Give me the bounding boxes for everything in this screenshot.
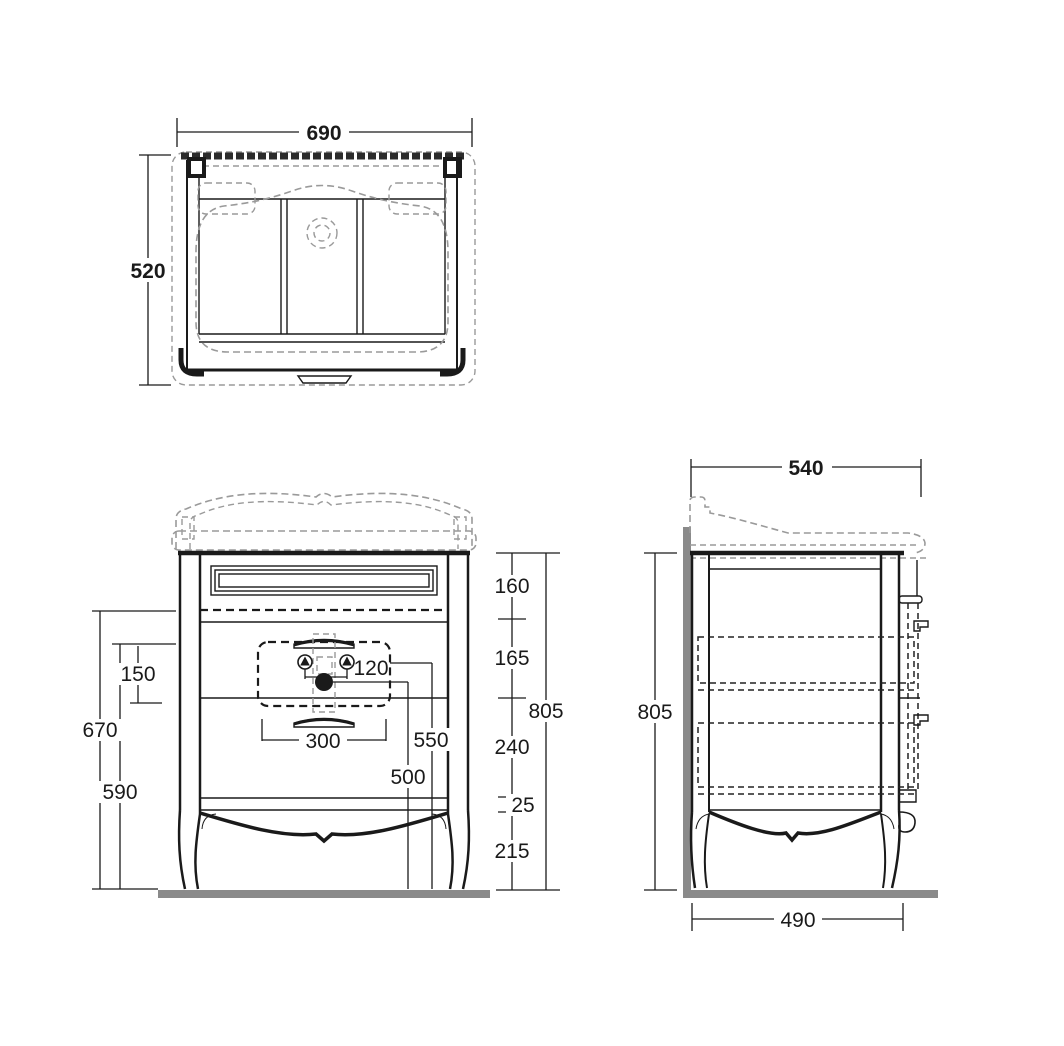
faucet-icon: [307, 218, 337, 248]
apron-curve-side: [709, 812, 881, 840]
backsplash-outline: [176, 493, 472, 549]
top-drawer-face-3: [219, 574, 429, 587]
top-drawer-face-2: [215, 570, 433, 591]
vanity-technical-drawing: 690 520: [0, 0, 1064, 1046]
label-faucet-spacing: 120: [353, 657, 388, 680]
leg-right-outer: [463, 810, 469, 889]
label-left-total: 670: [82, 719, 117, 742]
label-handle-width: 300: [305, 730, 340, 753]
label-seg-lower: 240: [494, 736, 529, 759]
label-seg-legs: 215: [494, 840, 529, 863]
dim-lines: [92, 611, 176, 889]
dim-plan-width: 690: [177, 118, 472, 147]
label-plan-width: 690: [306, 122, 341, 145]
label-total-height: 805: [528, 700, 563, 723]
label-side-width: 540: [788, 457, 823, 480]
front-leg-outer: [892, 810, 900, 888]
inner-side-edges: [199, 178, 445, 334]
backsplash-outer: [176, 493, 472, 549]
handle-top-profile: [899, 596, 922, 603]
carcass-frame: [187, 160, 457, 370]
supply-triangle: [342, 657, 352, 666]
side-view: 540: [632, 456, 938, 932]
label-drain-height: 500: [390, 766, 425, 789]
leg-left-inner: [195, 814, 200, 889]
label-left-lower: 590: [102, 781, 137, 804]
floor-front: [158, 890, 490, 898]
handle-bottom-arc: [294, 720, 354, 725]
front-leg-scroll: [899, 812, 915, 832]
faucet-inner: [314, 225, 330, 241]
frame-rails: [199, 199, 445, 342]
dim-drain-height: 500: [333, 682, 431, 889]
frame-dividers: [281, 199, 363, 334]
dim-chain-right: 160 165 240 25 215 805: [489, 553, 569, 890]
supply-fitting-left: [298, 655, 312, 669]
handle-mid-profile: [914, 621, 928, 631]
dim-side-depth: 490: [692, 903, 903, 932]
cabinet-front: [178, 553, 470, 889]
drain-icon: [315, 673, 333, 691]
wall: [683, 527, 691, 898]
cabinet-side: [690, 553, 928, 888]
plan-handle: [298, 376, 351, 383]
countertop-side: [690, 497, 926, 558]
front-view: 120 550 500 300 160 165 240 25: [77, 493, 569, 898]
apron-shoulder-arcs: [202, 814, 446, 829]
splash-return-left: [182, 517, 194, 539]
label-side-height: 805: [637, 701, 672, 724]
sink-outline: [196, 186, 448, 353]
faucet-outer: [307, 218, 337, 248]
apron-curve: [200, 813, 448, 841]
back-leg-outer: [691, 812, 695, 888]
label-left-zone: 150: [120, 663, 155, 686]
floor-side: [683, 890, 938, 898]
dim-plan-depth: 520: [124, 155, 172, 385]
dim-left: 670 150 590: [77, 611, 176, 889]
technical-drawing-page: 690 520: [0, 0, 1064, 1046]
drawer-front-bottom-step: [899, 790, 916, 802]
countertop-outline: [172, 152, 475, 385]
splash-return-right: [454, 517, 466, 539]
backsplash-inner: [190, 502, 458, 550]
supply-triangle: [300, 657, 310, 666]
label-seg-top-drawer: 160: [494, 575, 529, 598]
handle-bot-profile: [914, 715, 928, 725]
dim-handle-width: 300: [262, 719, 386, 753]
dim-side-width: 540: [691, 456, 921, 497]
label-seg-rail: 25: [511, 794, 534, 817]
label-supply-height: 550: [413, 729, 448, 752]
pipe-chase-inner: [317, 657, 332, 674]
leg-right-inner: [448, 814, 453, 889]
label-seg-middle: 165: [494, 647, 529, 670]
dim-side-height: 805: [632, 553, 678, 890]
front-leg-inner: [881, 814, 885, 888]
supply-fitting-right: [340, 655, 354, 669]
side-edges: [187, 160, 457, 370]
countertop-front: [172, 531, 476, 550]
leg-left-outer: [179, 810, 185, 889]
back-leg-inner: [705, 814, 709, 888]
post-top-left: [189, 159, 204, 176]
label-side-depth: 490: [780, 909, 815, 932]
label-plan-depth: 520: [130, 260, 165, 283]
apron-shoulder-arcs-side: [696, 814, 894, 829]
top-view: 690 520: [124, 118, 475, 385]
